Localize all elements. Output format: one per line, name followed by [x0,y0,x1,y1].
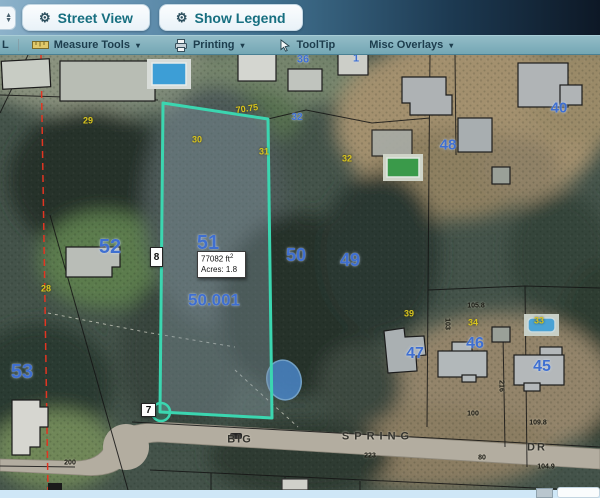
chevron-down-icon: ▾ [241,41,245,50]
ruler-icon [32,40,49,50]
footer-partial-button[interactable] [557,487,600,498]
map-viewport[interactable]: 525150495350.001484047464532361293031322… [0,55,600,490]
map-application: ▲ ▼ ⚙ Street View ⚙ Show Legend L Measur… [0,0,600,498]
footer-partial-element[interactable] [536,488,553,498]
menu-tooltip[interactable]: ToolTip [275,39,340,52]
top-toolbar: ▲ ▼ ⚙ Street View ⚙ Show Legend [0,0,600,35]
show-legend-label: Show Legend [195,10,286,26]
menu-printing[interactable]: Printing ▾ [170,39,249,52]
vertex-label-8: 8 [150,247,163,267]
chevron-down-icon: ▾ [449,41,453,50]
street-view-label: Street View [58,10,133,26]
printing-label: Printing [193,39,235,51]
tooltip-area-line: 77082 ft2 [201,254,242,265]
spinner-partial-control[interactable]: ▲ ▼ [0,6,16,30]
cursor-icon [279,39,292,52]
spinner-down-icon: ▼ [5,18,12,23]
partial-menu-label[interactable]: L [2,39,9,51]
printer-icon [174,39,188,52]
measure-tools-label: Measure Tools [54,39,130,51]
gear-icon: ⚙ [39,11,51,24]
tooltip-acres-line: Acres: 1.8 [201,265,242,275]
footer-strip [0,490,600,498]
street-view-button[interactable]: ⚙ Street View [22,4,150,31]
chevron-down-icon: ▾ [136,41,140,50]
show-legend-button[interactable]: ⚙ Show Legend [159,4,303,31]
vertex-label-7: 7 [141,403,156,417]
menu-measure-tools[interactable]: Measure Tools ▾ [28,39,144,51]
vertex-7-text: 7 [146,405,152,416]
vertex-8-text: 8 [154,252,160,263]
aerial-map-canvas [0,55,600,490]
misc-overlays-label: Misc Overlays [369,39,443,51]
toolbar-separator [18,39,19,51]
menu-toolbar: L Measure Tools ▾ Printing ▾ ToolT [0,35,600,55]
tooltip-label: ToolTip [297,39,336,51]
menu-misc-overlays[interactable]: Misc Overlays ▾ [365,39,457,51]
gear-icon: ⚙ [176,11,188,24]
area-tooltip: 77082 ft2 Acres: 1.8 [197,251,246,278]
